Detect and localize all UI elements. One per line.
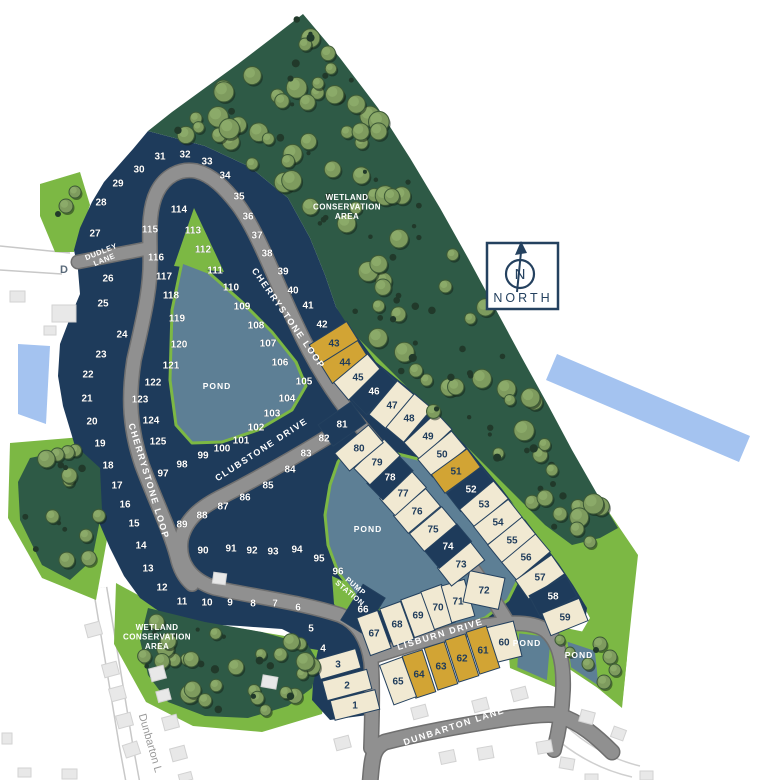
lot-number-70: 70 [432, 603, 444, 614]
bush-icon [78, 465, 85, 472]
tree-top-icon [349, 97, 359, 107]
house [2, 733, 12, 744]
tree-top-icon [474, 371, 485, 382]
lot-number-93: 93 [267, 547, 279, 558]
tree-top-icon [499, 381, 509, 391]
lot-number-48: 48 [403, 414, 415, 425]
tree-top-icon [301, 96, 310, 105]
bush-icon [412, 224, 416, 228]
tree-top-icon [572, 501, 580, 509]
tree-top-icon [585, 537, 592, 544]
bush-icon [287, 75, 293, 81]
tree-top-icon [585, 495, 596, 506]
lot-number-122: 122 [145, 378, 162, 389]
lot-number-51: 51 [450, 467, 462, 478]
tree-top-icon [594, 638, 602, 646]
lot-number-77: 77 [397, 489, 409, 500]
lot-number-40: 40 [287, 286, 299, 297]
lot-number-112: 112 [195, 245, 212, 256]
lot-number-119: 119 [169, 314, 186, 325]
lot-number-90: 90 [197, 546, 209, 557]
tree-top-icon [47, 511, 54, 518]
house [212, 572, 226, 585]
tree-top-icon [539, 491, 548, 500]
bush-icon [144, 664, 149, 669]
lot-number-65: 65 [392, 677, 404, 688]
bush-icon [413, 341, 418, 346]
tree-top-icon [449, 380, 458, 389]
north-compass: N NORTH [487, 241, 558, 309]
tree-top-icon [354, 124, 363, 133]
tree-top-icon [285, 635, 294, 644]
lot-number-23: 23 [95, 350, 107, 361]
tree-top-icon [572, 509, 582, 519]
bush-icon [409, 354, 417, 362]
tree-top-icon [60, 200, 68, 208]
tree-top-icon [200, 695, 207, 702]
lot-number-125: 125 [150, 437, 167, 448]
tree-top-icon [257, 649, 263, 655]
house [439, 750, 456, 765]
tree-top-icon [300, 39, 307, 46]
tree-top-icon [386, 190, 394, 198]
bush-icon [323, 215, 329, 221]
lot-number-46: 46 [368, 387, 380, 398]
lot-number-58: 58 [547, 592, 559, 603]
tree-top-icon [554, 508, 562, 516]
bush-icon [290, 102, 294, 106]
house [334, 735, 352, 750]
compass-letter: N [515, 266, 526, 283]
lot-number-105: 105 [296, 377, 313, 388]
tree-top-icon [276, 95, 284, 103]
lot-number-98: 98 [176, 460, 188, 471]
lot-number-86: 86 [239, 493, 251, 504]
lot-number-15: 15 [128, 519, 140, 530]
tree-top-icon [70, 187, 77, 194]
house [162, 714, 180, 730]
stream-east [546, 354, 750, 462]
bush-icon [57, 521, 61, 525]
lot-number-31: 31 [154, 152, 166, 163]
bush-icon [551, 524, 557, 530]
bush-icon [559, 492, 566, 499]
lot-number-26: 26 [102, 274, 114, 285]
tree-top-icon [313, 78, 320, 85]
tree-top-icon [94, 510, 101, 517]
lot-number-12: 12 [156, 583, 168, 594]
house [640, 771, 653, 780]
tree-top-icon [326, 162, 335, 171]
bush-icon [222, 634, 226, 638]
lot-number-104: 104 [279, 394, 296, 405]
tree-top-icon [304, 200, 313, 209]
bush-icon [55, 211, 61, 217]
bush-icon [267, 662, 274, 669]
bush-icon [174, 127, 181, 134]
lot-number-92: 92 [246, 546, 258, 557]
lot-number-54: 54 [492, 518, 504, 529]
house [52, 305, 76, 322]
bush-icon [434, 406, 439, 411]
lot-number-76: 76 [411, 507, 423, 518]
tree-top-icon [61, 553, 70, 562]
lot-number-42: 42 [316, 320, 328, 331]
tree-top-icon [342, 127, 349, 134]
lot-number-64: 64 [413, 670, 425, 681]
lot-number-16: 16 [119, 500, 131, 511]
lot-number-43: 43 [328, 339, 340, 350]
lot-number-73: 73 [455, 560, 467, 571]
lot-number-62: 62 [456, 654, 468, 665]
lot-number-24: 24 [116, 330, 128, 341]
lot-number-113: 113 [185, 226, 202, 237]
tree-top-icon [191, 113, 198, 120]
bush-icon [215, 706, 223, 714]
tree-top-icon [610, 665, 617, 672]
lot-number-49: 49 [422, 432, 434, 443]
house [261, 675, 278, 689]
bush-icon [389, 254, 396, 261]
bush-icon [256, 657, 264, 665]
bush-icon [277, 134, 285, 142]
tree-top-icon [210, 108, 221, 119]
lot-number-87: 87 [217, 502, 229, 513]
lot-number-116: 116 [148, 253, 165, 264]
lot-number-56: 56 [520, 553, 532, 564]
tree-top-icon [516, 422, 527, 433]
tree-top-icon [598, 676, 606, 684]
house [611, 726, 627, 741]
lot-number-68: 68 [391, 620, 403, 631]
house [44, 326, 56, 335]
lot-number-91: 91 [225, 544, 237, 555]
lot-number-19: 19 [94, 439, 106, 450]
tree-top-icon [322, 47, 330, 55]
bush-icon [390, 316, 396, 322]
bush-icon [368, 234, 373, 239]
lot-number-102: 102 [248, 423, 265, 434]
lot-number-20: 20 [86, 417, 98, 428]
bush-icon [228, 108, 235, 115]
lot-number-109: 109 [234, 302, 251, 313]
lot-number-96: 96 [332, 567, 344, 578]
tree-top-icon [604, 651, 612, 659]
tree-top-icon [327, 87, 337, 97]
house [511, 686, 529, 701]
lot-number-111: 111 [207, 266, 223, 277]
tree-top-icon [448, 250, 455, 257]
house [411, 704, 429, 719]
lot-number-57: 57 [534, 573, 546, 584]
bush-icon [211, 665, 219, 673]
tree-top-icon [372, 257, 382, 267]
bush-icon [306, 151, 310, 155]
lot-number-103: 103 [264, 409, 281, 420]
tree-top-icon [275, 649, 282, 656]
house [178, 771, 193, 780]
tree-top-icon [156, 655, 164, 663]
tree-top-icon [211, 680, 218, 687]
lot-number-69: 69 [412, 611, 424, 622]
lot-number-121: 121 [163, 361, 180, 372]
site-plan-svg: 1234567891011121314151617181920212223242… [0, 0, 773, 780]
site-plan-map: 1234567891011121314151617181920212223242… [0, 0, 773, 780]
lot-number-61: 61 [477, 646, 489, 657]
tree-top-icon [39, 452, 49, 462]
offsite-road-line [0, 270, 62, 274]
tree-top-icon [376, 280, 385, 289]
bush-icon [428, 307, 436, 315]
lot-number-55: 55 [506, 536, 518, 547]
tree-top-icon [283, 156, 290, 163]
bush-icon [58, 462, 64, 468]
lot-number-8: 8 [250, 599, 256, 610]
lot-number-107: 107 [260, 339, 277, 350]
bush-icon [318, 221, 323, 226]
tree-top-icon [261, 705, 267, 711]
lot-number-28: 28 [95, 198, 107, 209]
bush-icon [22, 514, 28, 520]
bush-icon [493, 454, 501, 462]
bush-icon [467, 415, 471, 419]
bush-icon [416, 203, 422, 209]
tree-top-icon [284, 172, 295, 183]
lot-number-99: 99 [197, 451, 209, 462]
tree-top-icon [547, 465, 554, 472]
lot-number-5: 5 [308, 624, 314, 635]
lot-number-45: 45 [352, 373, 364, 384]
tree-top-icon [326, 64, 332, 70]
lot-number-85: 85 [262, 481, 274, 492]
lot-number-7: 7 [272, 599, 278, 610]
lot-number-18: 18 [102, 461, 114, 472]
tree-top-icon [245, 68, 255, 78]
lot-number-36: 36 [242, 212, 254, 223]
lot-number-60: 60 [498, 638, 510, 649]
tree-top-icon [523, 390, 534, 401]
house [170, 745, 188, 761]
lot-number-53: 53 [478, 500, 490, 511]
tree-top-icon [370, 330, 380, 340]
tree-top-icon [216, 83, 227, 94]
lot-number-35: 35 [233, 192, 245, 203]
bush-icon [398, 368, 405, 375]
lot-number-95: 95 [313, 554, 325, 565]
lot-number-37: 37 [251, 231, 263, 242]
bush-icon [459, 346, 466, 353]
lot-number-94: 94 [291, 545, 303, 556]
lot-number-30: 30 [133, 165, 145, 176]
bush-icon [412, 303, 420, 311]
tree-top-icon [247, 159, 254, 166]
tree-top-icon [185, 653, 193, 661]
lot-number-71: 71 [452, 597, 464, 608]
lot-number-110: 110 [223, 283, 240, 294]
tree-top-icon [391, 231, 401, 241]
bush-icon [550, 481, 556, 487]
bush-icon [294, 16, 301, 23]
pond-label: POND [354, 524, 383, 534]
lot-number-44: 44 [339, 358, 351, 369]
bush-icon [593, 647, 599, 653]
pond-label: POND [203, 381, 232, 391]
pond-label: POND [565, 650, 594, 660]
lot-number-4: 4 [320, 644, 326, 655]
lot-number-2: 2 [344, 681, 350, 692]
tree-top-icon [372, 124, 381, 133]
lot-number-115: 115 [142, 225, 159, 236]
bush-icon [62, 527, 67, 532]
pond-label: POND [513, 638, 542, 648]
compass-label: NORTH [493, 291, 552, 305]
tree-top-icon [540, 439, 547, 446]
lot-number-79: 79 [371, 458, 383, 469]
tree-top-icon [396, 344, 407, 355]
tree-top-icon [281, 687, 288, 694]
lot-number-78: 78 [384, 473, 396, 484]
lot-number-89: 89 [176, 520, 188, 531]
lot-number-74: 74 [442, 542, 454, 553]
tree-top-icon [230, 660, 239, 669]
lot-number-101: 101 [233, 436, 250, 447]
lot-number-81: 81 [336, 420, 348, 431]
bush-icon [500, 354, 506, 360]
tree-top-icon [374, 301, 381, 308]
tree-top-icon [526, 496, 534, 504]
lot-number-22: 22 [82, 370, 94, 381]
lot-number-32: 32 [179, 150, 191, 161]
offsite-road-label: Dunbarton L [136, 712, 164, 774]
house [10, 291, 25, 302]
lot-number-6: 6 [295, 603, 301, 614]
lot-number-88: 88 [196, 511, 208, 522]
house [85, 621, 103, 637]
tree-top-icon [571, 523, 579, 531]
bush-icon [196, 628, 200, 632]
house [62, 769, 77, 779]
house [536, 740, 553, 754]
lot-number-11: 11 [177, 597, 188, 608]
offsite-road-label-fragment: D [60, 264, 68, 276]
lot-number-9: 9 [227, 598, 233, 609]
lot-number-97: 97 [157, 469, 169, 480]
tree-top-icon [211, 629, 217, 635]
lot-number-27: 27 [89, 229, 101, 240]
lot-number-17: 17 [111, 481, 123, 492]
lot-number-13: 13 [142, 564, 154, 575]
bush-icon [352, 308, 358, 314]
house [559, 757, 575, 770]
bush-icon [488, 432, 492, 436]
bush-icon [374, 178, 379, 183]
lot-number-41: 41 [302, 301, 314, 312]
tree-top-icon [139, 650, 146, 657]
lot-number-106: 106 [272, 358, 289, 369]
house [585, 774, 598, 780]
bush-icon [530, 444, 538, 452]
bush-icon [467, 370, 473, 376]
bush-icon [292, 59, 300, 67]
bush-icon [377, 315, 383, 321]
lot-number-114: 114 [171, 205, 188, 216]
tree-top-icon [556, 636, 562, 642]
bush-icon [405, 180, 410, 185]
bush-icon [416, 235, 421, 240]
lot-number-3: 3 [335, 660, 341, 671]
bush-icon [33, 546, 39, 552]
tree-top-icon [298, 654, 308, 664]
lot-number-82: 82 [318, 434, 330, 445]
lot-number-124: 124 [143, 416, 160, 427]
lot-number-1: 1 [352, 701, 358, 712]
house [477, 746, 494, 760]
lot-number-80: 80 [353, 444, 365, 455]
bush-icon [251, 694, 256, 699]
tree-top-icon [466, 314, 472, 320]
lot-number-10: 10 [201, 598, 213, 609]
tree-top-icon [354, 168, 363, 177]
bush-icon [396, 293, 402, 299]
tree-top-icon [186, 682, 195, 691]
tree-top-icon [81, 530, 88, 537]
bush-icon [322, 73, 328, 79]
lot-number-63: 63 [435, 662, 447, 673]
tree-top-icon [302, 135, 311, 144]
lot-number-72: 72 [478, 586, 490, 597]
tree-top-icon [505, 395, 511, 401]
lot-number-34: 34 [219, 171, 231, 182]
lot-number-38: 38 [261, 249, 273, 260]
tree-top-icon [83, 552, 91, 560]
lot-number-29: 29 [112, 179, 124, 190]
lot-number-39: 39 [277, 267, 289, 278]
bush-icon [287, 693, 294, 700]
lot-number-50: 50 [436, 450, 448, 461]
bush-icon [308, 32, 312, 36]
lot-number-67: 67 [368, 629, 380, 640]
lot-number-84: 84 [284, 465, 296, 476]
lot-number-33: 33 [201, 157, 213, 168]
tree-top-icon [251, 124, 261, 134]
tree-top-icon [410, 365, 417, 372]
tree-top-icon [194, 122, 200, 128]
lot-number-118: 118 [163, 291, 180, 302]
bush-icon [363, 170, 367, 174]
tree-top-icon [264, 134, 271, 141]
bush-icon [524, 448, 530, 454]
bush-icon [198, 661, 205, 668]
lot-number-123: 123 [132, 395, 149, 406]
tree-top-icon [221, 120, 232, 131]
lot-number-108: 108 [248, 321, 265, 332]
stream-west [18, 344, 50, 424]
lot-number-47: 47 [386, 401, 398, 412]
lot-number-83: 83 [300, 449, 312, 460]
tree-top-icon [440, 281, 447, 288]
bush-icon [447, 374, 454, 381]
bush-icon [487, 425, 493, 431]
tree-top-icon [392, 308, 400, 316]
lot-number-25: 25 [97, 299, 109, 310]
lot-number-21: 21 [81, 394, 93, 405]
tree-top-icon [63, 469, 71, 477]
lot-number-100: 100 [214, 444, 231, 455]
bush-icon [349, 78, 354, 83]
lot-number-120: 120 [171, 340, 188, 351]
lot-number-52: 52 [465, 485, 477, 496]
lot-number-14: 14 [135, 541, 147, 552]
